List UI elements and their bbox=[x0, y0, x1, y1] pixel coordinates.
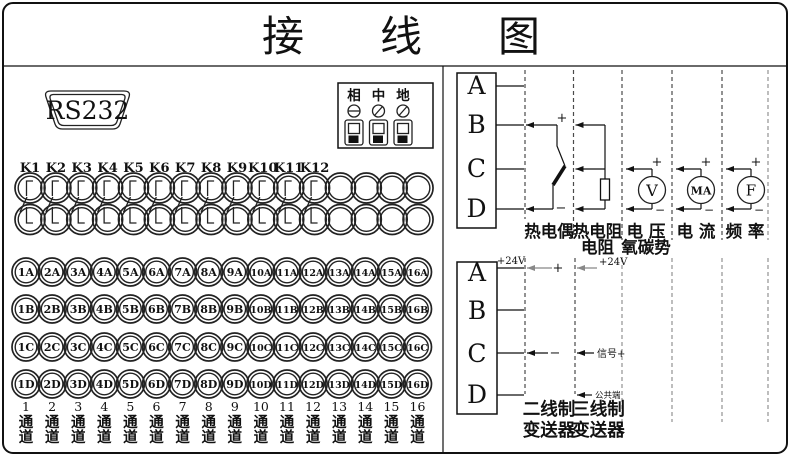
v-meter-letter: V bbox=[645, 181, 658, 200]
terminal-label: 10A bbox=[251, 268, 272, 279]
channel-word-char-2: 道 bbox=[254, 428, 269, 446]
label-frequency: 频 率 bbox=[726, 221, 765, 241]
supply-24v-label-right: +24V bbox=[599, 257, 628, 268]
ma-meter-letter: MA bbox=[691, 185, 712, 198]
wiring-diagram: 接线图 RS232 相 中 地 K1 bbox=[0, 0, 790, 456]
terminal-label: 3B bbox=[70, 303, 87, 316]
terminal-label: 11C bbox=[277, 343, 298, 354]
terminal-label: 15B bbox=[381, 305, 402, 316]
terminal-label: 13A bbox=[329, 268, 350, 279]
terminal-label: 5B bbox=[122, 303, 139, 316]
terminal-label: 5C bbox=[122, 341, 139, 354]
terminal-label: 2A bbox=[44, 266, 61, 279]
channel-word-char-2: 道 bbox=[228, 428, 243, 446]
label-resistance: 电阻 bbox=[581, 237, 615, 257]
v-minus: − bbox=[655, 203, 665, 217]
terminal-label: 16B bbox=[407, 305, 428, 316]
label-two-wire-2: 变送器 bbox=[523, 420, 576, 441]
channel-word-char-2: 道 bbox=[384, 428, 399, 446]
terminal-label: 12C bbox=[303, 343, 324, 354]
wiring-diagram-page: 接线图 RS232 相 中 地 K1 bbox=[0, 0, 790, 456]
tc-minus: − bbox=[556, 201, 567, 216]
channel-word-char-2: 道 bbox=[97, 428, 112, 446]
channel-number: 2 bbox=[48, 399, 56, 414]
terminal-label: 14B bbox=[355, 305, 376, 316]
channel-word-char-2: 道 bbox=[332, 428, 347, 446]
channel-number: 7 bbox=[179, 399, 187, 414]
channel-number: 6 bbox=[153, 399, 161, 414]
signal-plus-label: 信号+ bbox=[597, 348, 625, 360]
terminal-label: 16A bbox=[407, 268, 428, 279]
terminal-label: 1D bbox=[17, 378, 35, 391]
relay-label: K8 bbox=[201, 161, 221, 176]
ma-minus: − bbox=[704, 203, 714, 217]
terminal-label: 12B bbox=[302, 305, 323, 316]
top-terminal-a: A bbox=[466, 71, 486, 100]
terminal-label: 3A bbox=[70, 266, 87, 279]
channel-number: 14 bbox=[357, 399, 373, 414]
terminal-label: 7D bbox=[174, 378, 192, 391]
resistor-symbol bbox=[601, 179, 610, 200]
channel-word-char-2: 道 bbox=[19, 428, 34, 446]
terminal-label: 7A bbox=[174, 266, 191, 279]
bot-terminal-b: B bbox=[468, 296, 486, 325]
rs232-label: RS232 bbox=[46, 96, 130, 125]
label-thermocouple: 热电偶 bbox=[524, 221, 574, 241]
f-minus: − bbox=[754, 203, 764, 217]
channel-number: 16 bbox=[410, 399, 426, 414]
terminal-label: 12D bbox=[302, 380, 323, 391]
power-label-phase: 相 bbox=[347, 87, 361, 104]
terminal-label: 12A bbox=[303, 268, 324, 279]
terminal-label: 11B bbox=[276, 305, 297, 316]
bot-terminal-d: D bbox=[467, 380, 487, 409]
terminal-label: 1A bbox=[18, 266, 35, 279]
terminal-label: 14C bbox=[355, 343, 376, 354]
terminal-label: 2B bbox=[44, 303, 61, 316]
terminal-label: 14D bbox=[355, 380, 376, 391]
terminal-label: 16C bbox=[407, 343, 428, 354]
terminal-label: 6D bbox=[148, 378, 166, 391]
terminal-label: 6A bbox=[148, 266, 165, 279]
page-title: 接线图 bbox=[262, 12, 616, 61]
terminal-label: 1C bbox=[18, 341, 35, 354]
relay-label: K4 bbox=[97, 161, 117, 176]
label-oxygen-carbon: 氧碳势 bbox=[620, 237, 671, 257]
channel-number: 1 bbox=[22, 399, 30, 414]
bot-terminal-c: C bbox=[467, 339, 486, 368]
tc-plus: + bbox=[557, 111, 568, 126]
channel-word-char-2: 道 bbox=[45, 428, 60, 446]
terminal-label: 3C bbox=[70, 341, 87, 354]
channel-number: 4 bbox=[100, 399, 108, 414]
terminal-label: 1B bbox=[18, 303, 35, 316]
label-two-wire: 二线制 bbox=[523, 399, 576, 420]
terminal-label: 4B bbox=[96, 303, 113, 316]
terminal-label: 3D bbox=[70, 378, 88, 391]
channel-word-char-2: 道 bbox=[71, 428, 86, 446]
bot-terminal-a: A bbox=[467, 258, 487, 287]
power-label-neutral: 中 bbox=[372, 87, 386, 104]
two-wire-minus: − bbox=[550, 346, 561, 361]
terminal-label: 8C bbox=[200, 341, 217, 354]
terminal-label: 8B bbox=[200, 303, 217, 316]
f-meter-letter: F bbox=[746, 182, 756, 200]
two-wire-plus: + bbox=[553, 261, 564, 276]
rs232-connector: RS232 bbox=[46, 91, 130, 129]
terminal-label: 11A bbox=[277, 268, 298, 279]
top-terminal-d: D bbox=[466, 194, 486, 223]
relay-label: K6 bbox=[149, 161, 169, 176]
f-plus: + bbox=[751, 155, 762, 170]
terminal-label: 6B bbox=[148, 303, 165, 316]
terminal-label: 9B bbox=[226, 303, 243, 316]
terminal-label: 9C bbox=[227, 341, 244, 354]
channel-number: 15 bbox=[383, 399, 399, 414]
channel-number: 10 bbox=[253, 399, 269, 414]
terminal-label: 2D bbox=[43, 378, 61, 391]
relay-label: K3 bbox=[72, 161, 92, 176]
relay-label: K12 bbox=[300, 161, 329, 176]
terminal-label: 10C bbox=[251, 343, 272, 354]
channel-number: 11 bbox=[279, 399, 295, 414]
terminal-label: 7C bbox=[174, 341, 191, 354]
terminal-label: 13B bbox=[329, 305, 350, 316]
terminal-label: 2C bbox=[44, 341, 61, 354]
label-current: 电 流 bbox=[677, 221, 716, 241]
terminal-label: 8D bbox=[200, 378, 218, 391]
relay-label: K7 bbox=[175, 161, 195, 176]
v-plus: + bbox=[652, 155, 663, 170]
top-terminal-b: B bbox=[467, 110, 485, 139]
terminal-label: 10D bbox=[250, 380, 271, 391]
terminal-label: 13C bbox=[329, 343, 350, 354]
terminal-label: 14A bbox=[355, 268, 376, 279]
terminal-label: 9D bbox=[226, 378, 244, 391]
relay-label: K9 bbox=[227, 161, 247, 176]
relay-label: K5 bbox=[123, 161, 143, 176]
channel-number: 5 bbox=[126, 399, 134, 414]
terminal-label: 15C bbox=[381, 343, 402, 354]
channel-word-char-2: 道 bbox=[306, 428, 321, 446]
terminal-label: 4A bbox=[96, 266, 113, 279]
channel-number: 8 bbox=[205, 399, 213, 414]
channel-number: 9 bbox=[231, 399, 239, 414]
channel-word-char-2: 道 bbox=[123, 428, 138, 446]
terminal-label: 7B bbox=[174, 303, 191, 316]
terminal-label: 6C bbox=[148, 341, 165, 354]
channel-word-char-2: 道 bbox=[280, 428, 295, 446]
channel-number: 13 bbox=[331, 399, 347, 414]
channel-word-char-2: 道 bbox=[410, 428, 425, 446]
terminal-label: 5A bbox=[122, 266, 139, 279]
channel-number: 12 bbox=[305, 399, 321, 414]
terminal-label: 9A bbox=[227, 266, 244, 279]
ma-plus: + bbox=[701, 155, 712, 170]
terminal-label: 15A bbox=[381, 268, 402, 279]
channel-word-char-2: 道 bbox=[149, 428, 164, 446]
channel-word-char-2: 道 bbox=[358, 428, 373, 446]
terminal-label: 16D bbox=[407, 380, 428, 391]
channel-number: 3 bbox=[74, 399, 82, 414]
terminal-label: 8A bbox=[201, 266, 218, 279]
channel-word-char-2: 道 bbox=[175, 428, 190, 446]
top-terminal-c: C bbox=[467, 154, 486, 183]
terminal-label: 4C bbox=[96, 341, 113, 354]
channel-word-char-2: 道 bbox=[201, 428, 216, 446]
relay-label: K2 bbox=[46, 161, 66, 176]
terminal-label: 11D bbox=[276, 380, 297, 391]
power-label-earth: 地 bbox=[396, 87, 410, 104]
relay-label: K1 bbox=[20, 161, 40, 176]
terminal-label: 13D bbox=[328, 380, 349, 391]
terminal-label: 15D bbox=[381, 380, 402, 391]
terminal-label: 5D bbox=[122, 378, 140, 391]
terminal-label: 4D bbox=[96, 378, 114, 391]
label-three-wire: 三线制 bbox=[572, 399, 625, 420]
terminal-label: 10B bbox=[250, 305, 271, 316]
supply-24v-label-left: +24V bbox=[497, 256, 526, 267]
label-three-wire-2: 变送器 bbox=[572, 420, 625, 441]
